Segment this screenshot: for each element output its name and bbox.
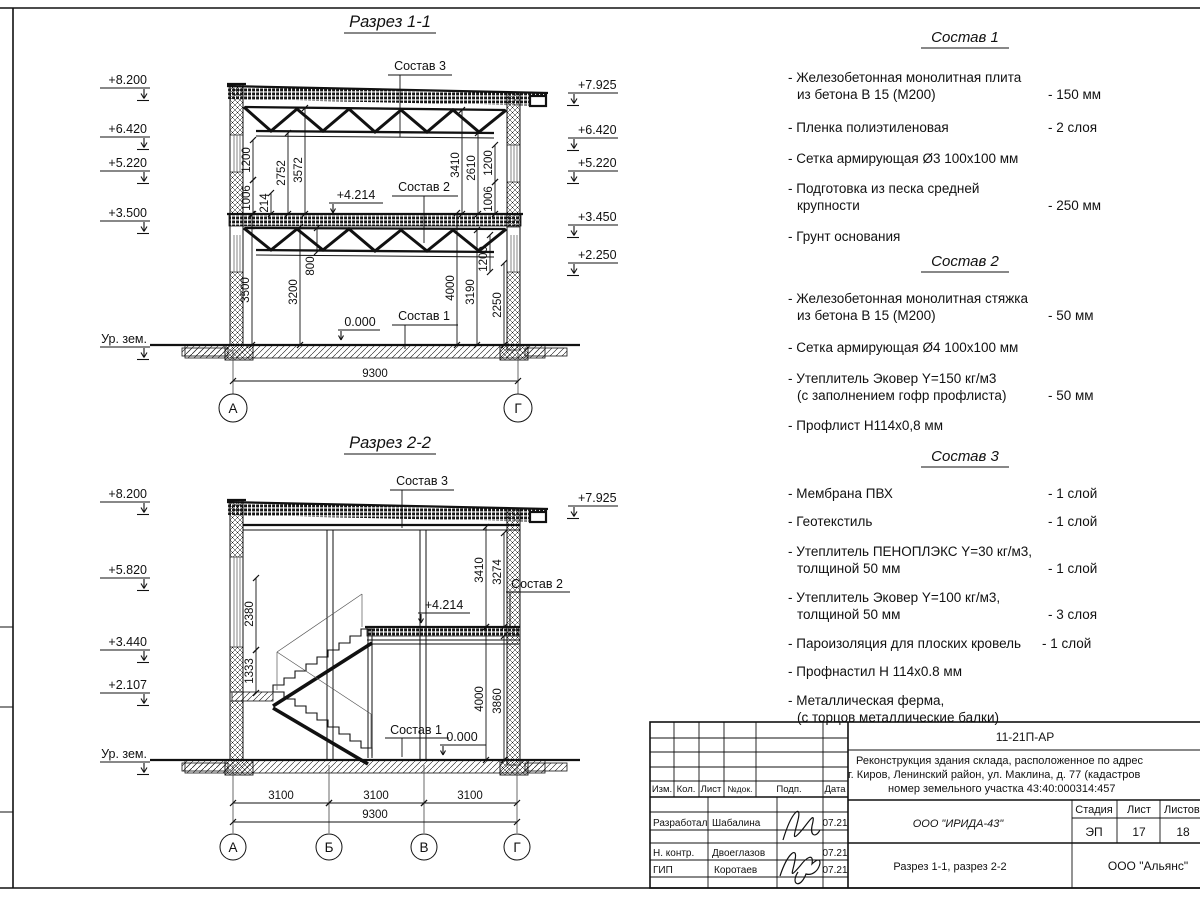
list-item-value: - 1 слой xyxy=(1048,514,1097,529)
list-item-value: - 1 слой xyxy=(1048,561,1097,576)
list-item: из бетона В 15 (М200) xyxy=(797,87,936,102)
row-name: Коротаев xyxy=(714,865,757,876)
list-item-value: - 2 слоя xyxy=(1048,120,1097,135)
axis-label: Г xyxy=(513,840,521,855)
row-name: Шабалина xyxy=(712,817,761,829)
bottom-dimension: 9300 А Г xyxy=(219,350,532,422)
dim-label: 3190 xyxy=(465,279,477,305)
list-item: - Грунт основания xyxy=(788,229,900,244)
col-izm: Изм. xyxy=(652,784,672,795)
list-item: - Утеплитель Эковер Y=100 кг/м3, xyxy=(788,590,1000,605)
row-role: Разработал xyxy=(653,817,708,829)
sostav1-label: Состав 1 xyxy=(398,309,450,323)
elevations-right: +7.925 xyxy=(567,491,618,519)
row-date: 07.21 xyxy=(822,818,847,829)
right-wall xyxy=(507,509,520,765)
mid-floor-slab xyxy=(365,627,520,644)
list-item: - Сетка армирующая Ø3 100х100 мм xyxy=(788,151,1018,166)
sostav3-label: Состав 3 xyxy=(394,59,446,73)
elevation-label: +3.500 xyxy=(108,206,147,220)
dim-label: 3100 xyxy=(457,790,483,802)
org-name: ООО "ИРИДА-43" xyxy=(913,818,1005,830)
list-item-value: - 250 мм xyxy=(1048,198,1101,213)
list-item: - Сетка армирующая Ø4 100х100 мм xyxy=(788,340,1018,355)
elevation-label: +2.250 xyxy=(578,248,617,262)
level-zero-label: 0.000 xyxy=(446,730,477,744)
list-item: - Железобетонная монолитная плита xyxy=(788,70,1022,85)
elevation-label: +2.107 xyxy=(108,678,147,692)
stage-header: Стадия xyxy=(1075,804,1113,816)
elevation-label: +7.925 xyxy=(578,491,617,505)
roof-slab xyxy=(227,502,548,530)
dim-label: 3410 xyxy=(474,557,486,583)
list-item: (с заполнением гофр профлиста) xyxy=(797,388,1006,403)
dim-label: 1333 xyxy=(244,658,256,684)
elevations-right: +7.925 +6.420 +5.220 +3.450 +2.250 xyxy=(567,78,618,276)
elevations-left: +8.200 +6.420 +5.220 +3.500 Ур. зем. xyxy=(100,73,150,360)
dim-label: 4000 xyxy=(445,275,457,301)
project-address-line2: г. Киров, Ленинский район, ул. Маклина, … xyxy=(848,769,1140,781)
org2-name: ООО "Альянс" xyxy=(1108,859,1188,873)
row-date: 07.21 xyxy=(822,848,847,859)
list-item: - Пленка полиэтиленовая xyxy=(788,120,949,135)
dim-label: 3572 xyxy=(293,157,305,183)
dim-label: 2752 xyxy=(276,160,288,186)
dim-label: 3860 xyxy=(492,688,504,714)
sostav2-label: Состав 2 xyxy=(398,180,450,194)
elevation-label: +5.820 xyxy=(108,563,147,577)
list-item: - Железобетонная монолитная стяжка xyxy=(788,291,1028,306)
sheet-title: Разрез 1-1, разрез 2-2 xyxy=(893,861,1006,873)
col-data: Дата xyxy=(824,784,846,795)
col-ndoc: №док. xyxy=(728,784,753,794)
composition-1-title: Состав 1 xyxy=(931,29,999,46)
row-date: 07.21 xyxy=(822,865,847,876)
composition-lists: Состав 1 - Железобетонная монолитная пли… xyxy=(788,29,1101,725)
dim-label: 1006 xyxy=(483,186,495,212)
list-item-value: - 1 слой xyxy=(1048,486,1097,501)
list-item: - Металлическая ферма, xyxy=(788,693,944,708)
project-address-line3: номер земельного участка 43:40:000314:45… xyxy=(888,783,1116,795)
level-mid-label: +4.214 xyxy=(425,598,464,612)
dim-label: 4000 xyxy=(474,686,486,712)
elevations-left: +8.200 +5.820 +3.440 +2.107 Ур. зем. xyxy=(100,487,150,775)
list-item: - Мембрана ПВХ xyxy=(788,486,893,501)
axis-label: Б xyxy=(325,840,334,855)
list-item: толщиной 50 мм xyxy=(797,607,900,622)
dim-total: 9300 xyxy=(362,809,388,821)
doc-code: 11-21П-АР xyxy=(996,730,1054,744)
row-role: Н. контр. xyxy=(653,848,694,859)
roof-slab xyxy=(227,86,548,106)
axis-label: А xyxy=(228,840,237,855)
section-1-1: Разрез 1-1 xyxy=(100,13,618,422)
list-item: - Профнастил Н 114х0.8 мм xyxy=(788,664,962,679)
stage-value: ЭП xyxy=(1085,825,1102,839)
row-name: Двоеглазов xyxy=(712,848,765,859)
dim-label: 3410 xyxy=(450,152,462,178)
list-item: - Подготовка из песка средней xyxy=(788,181,979,196)
list-item: толщиной 50 мм xyxy=(797,561,900,576)
ground-slab xyxy=(150,345,580,360)
dim-label: 1200 xyxy=(483,150,495,176)
level-zero-label: 0.000 xyxy=(344,315,375,329)
list-item: - Геотекстиль xyxy=(788,514,872,529)
right-wall xyxy=(507,93,520,350)
elevation-label: +3.440 xyxy=(108,635,147,649)
elevation-label: +5.220 xyxy=(108,156,147,170)
section-2-2-title: Разрез 2-2 xyxy=(349,434,431,452)
col-podp: Подп. xyxy=(776,784,801,795)
list-item-value: - 50 мм xyxy=(1048,308,1094,323)
elevation-label: +3.450 xyxy=(578,210,617,224)
section-1-1-title: Разрез 1-1 xyxy=(349,13,431,31)
drawing-canvas: Разрез 1-1 xyxy=(0,0,1200,900)
elevation-label: +8.200 xyxy=(108,487,147,501)
composition-2-title: Состав 2 xyxy=(931,253,999,270)
mid-floor-slab xyxy=(227,214,523,226)
axis-label: В xyxy=(419,840,428,855)
dim-label: 2610 xyxy=(466,155,478,181)
sostav3-label: Состав 3 xyxy=(396,474,448,488)
col-list: Лист xyxy=(701,784,722,795)
dim-label: 800 xyxy=(305,256,317,275)
floor-truss xyxy=(245,228,505,257)
col-kol: Кол. xyxy=(677,784,696,795)
list-item-value: - 50 мм xyxy=(1048,388,1094,403)
dim-label: 1200 xyxy=(241,147,253,173)
sheet-header: Лист xyxy=(1127,804,1151,816)
row-role: ГИП xyxy=(653,865,673,876)
sheets-header: Листов xyxy=(1164,804,1200,816)
axis-label: Г xyxy=(514,401,522,416)
sheet-value: 17 xyxy=(1132,825,1146,839)
ground-level-label: Ур. зем. xyxy=(101,747,147,761)
dimensions: 1200 1006 214 2752 3572 3410 2610 1200 1… xyxy=(240,108,504,345)
elevation-label: +7.925 xyxy=(578,78,617,92)
elevation-label: +6.420 xyxy=(578,123,617,137)
drawing-sheet: Разрез 1-1 xyxy=(0,0,1200,900)
list-item-value: - 1 слой xyxy=(1042,636,1091,651)
dim-label: 2380 xyxy=(244,601,256,627)
list-item: - Утеплитель Эковер Y=150 кг/м3 xyxy=(788,371,996,386)
dim-label: 1200 xyxy=(478,246,490,272)
bottom-dimensions: 3100 3100 3100 9300 А Б В Г xyxy=(220,765,530,860)
left-wall xyxy=(227,500,246,760)
dim-label: 3100 xyxy=(268,790,294,802)
dim-label: 3500 xyxy=(240,277,252,303)
elevation-label: +8.200 xyxy=(108,73,147,87)
signature xyxy=(780,853,820,884)
title-block: Изм. Кол. Лист №док. Подп. Дата Разработ… xyxy=(650,722,1200,888)
sostav2-label: Состав 2 xyxy=(511,577,563,591)
dim-label: 2250 xyxy=(492,292,504,318)
dim-label: 1006 xyxy=(241,185,253,211)
composition-3-title: Состав 3 xyxy=(931,448,999,465)
list-item: из бетона В 15 (М200) xyxy=(797,308,936,323)
level-mid-label: +4.214 xyxy=(337,188,376,202)
dim-label: 3200 xyxy=(288,279,300,305)
ground-level-label: Ур. зем. xyxy=(101,332,147,346)
list-item: крупности xyxy=(797,198,860,213)
dim-label: 214 xyxy=(259,193,271,213)
sostav1-label: Состав 1 xyxy=(390,723,442,737)
project-address-line1: Реконструкция здания склада, расположенн… xyxy=(856,755,1144,767)
list-item: - Утеплитель ПЕНОПЛЭКС Y=30 кг/м3, xyxy=(788,544,1032,559)
elevation-label: +5.220 xyxy=(578,156,617,170)
signature xyxy=(783,811,820,840)
list-item: - Пароизоляция для плоских кровель xyxy=(788,636,1021,651)
list-item: - Профлист Н114х0,8 мм xyxy=(788,418,943,433)
elevation-label: +6.420 xyxy=(108,122,147,136)
sheets-value: 18 xyxy=(1176,825,1190,839)
ground-slab xyxy=(150,760,580,775)
section-2-2: Разрез 2-2 xyxy=(100,434,618,860)
dim-label: 3100 xyxy=(363,790,389,802)
axis-label: А xyxy=(228,401,237,416)
list-item-value: - 150 мм xyxy=(1048,87,1101,102)
list-item-value: - 3 слоя xyxy=(1048,607,1097,622)
roof-truss xyxy=(245,107,505,138)
dim-label: 3274 xyxy=(492,559,504,585)
dim-total: 9300 xyxy=(362,368,388,380)
